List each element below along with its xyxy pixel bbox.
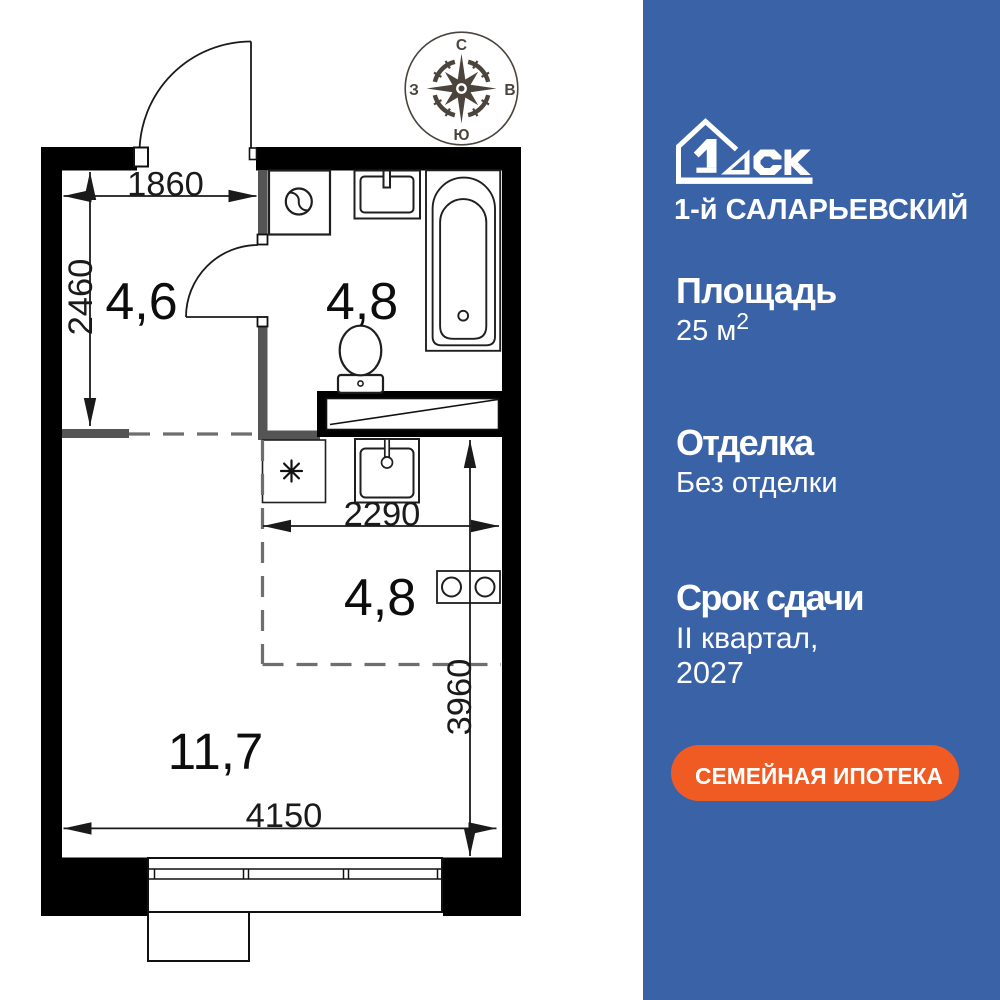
svg-text:11,7: 11,7 <box>168 723 263 780</box>
svg-text:4,8: 4,8 <box>344 569 416 627</box>
svg-text:1860: 1860 <box>127 166 204 204</box>
svg-text:С: С <box>456 37 467 54</box>
svg-text:В: В <box>504 82 515 99</box>
svg-text:4150: 4150 <box>246 797 323 835</box>
svg-text:З: З <box>409 82 419 99</box>
svg-text:4,8: 4,8 <box>326 273 398 331</box>
svg-text:2460: 2460 <box>62 259 100 336</box>
svg-text:3960: 3960 <box>441 659 479 736</box>
svg-text:Ю: Ю <box>454 127 470 144</box>
svg-text:4,6: 4,6 <box>105 273 177 331</box>
svg-text:2290: 2290 <box>344 496 421 534</box>
